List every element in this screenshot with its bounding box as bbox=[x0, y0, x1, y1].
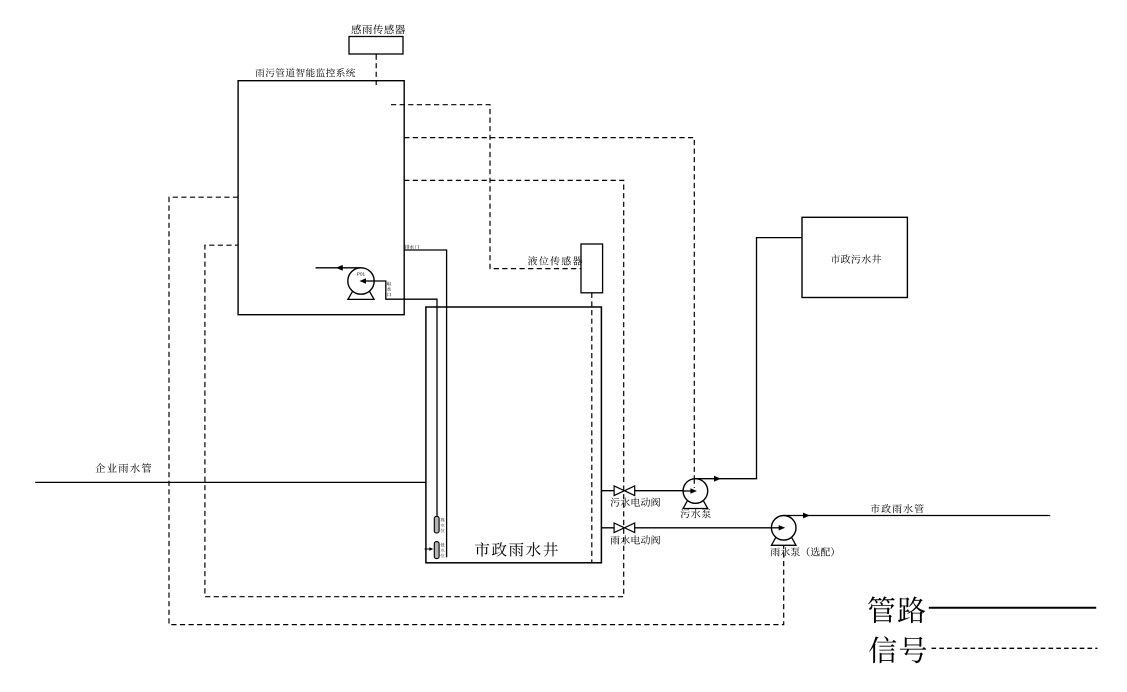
svg-text:P01: P01 bbox=[357, 272, 366, 277]
